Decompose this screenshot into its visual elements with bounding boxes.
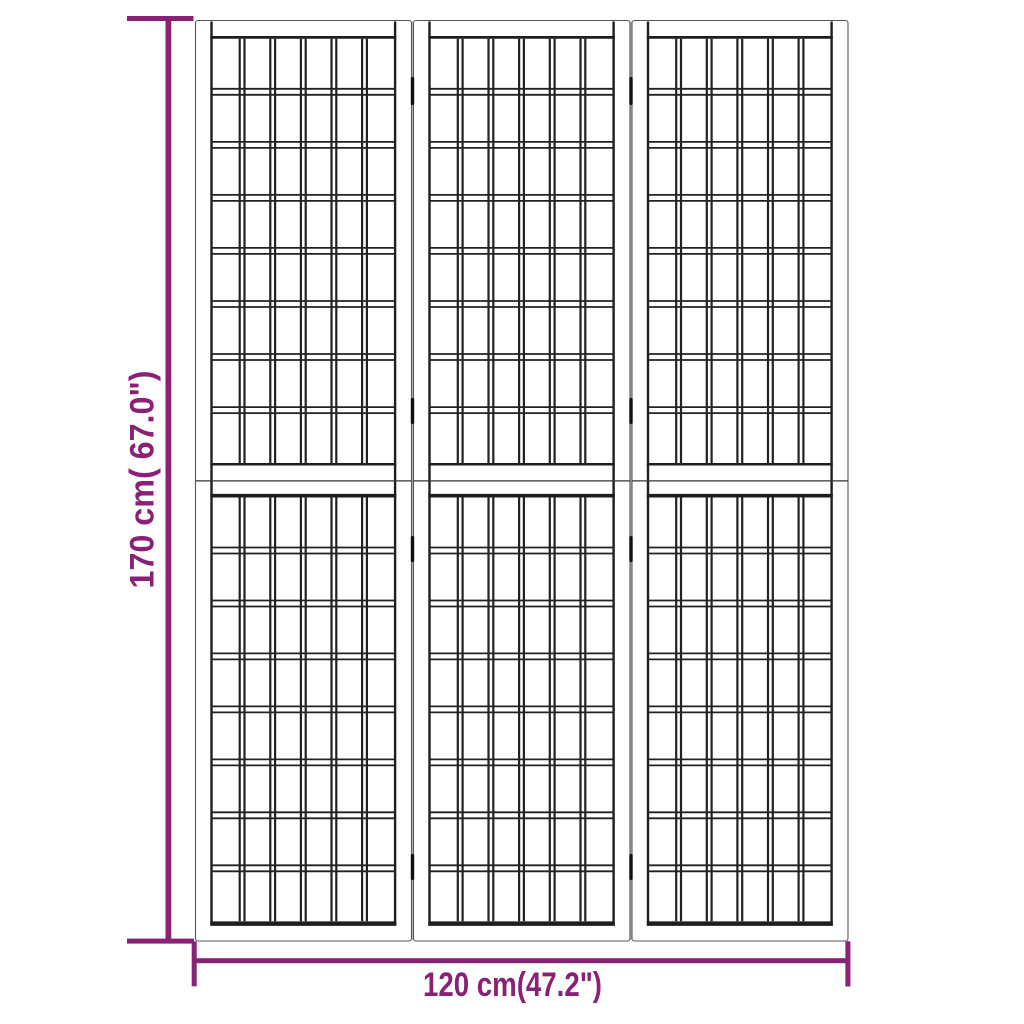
svg-text:120 cm(47.2"): 120 cm(47.2") bbox=[423, 966, 602, 1004]
svg-text:170 cm( 67.0"): 170 cm( 67.0") bbox=[124, 371, 162, 589]
